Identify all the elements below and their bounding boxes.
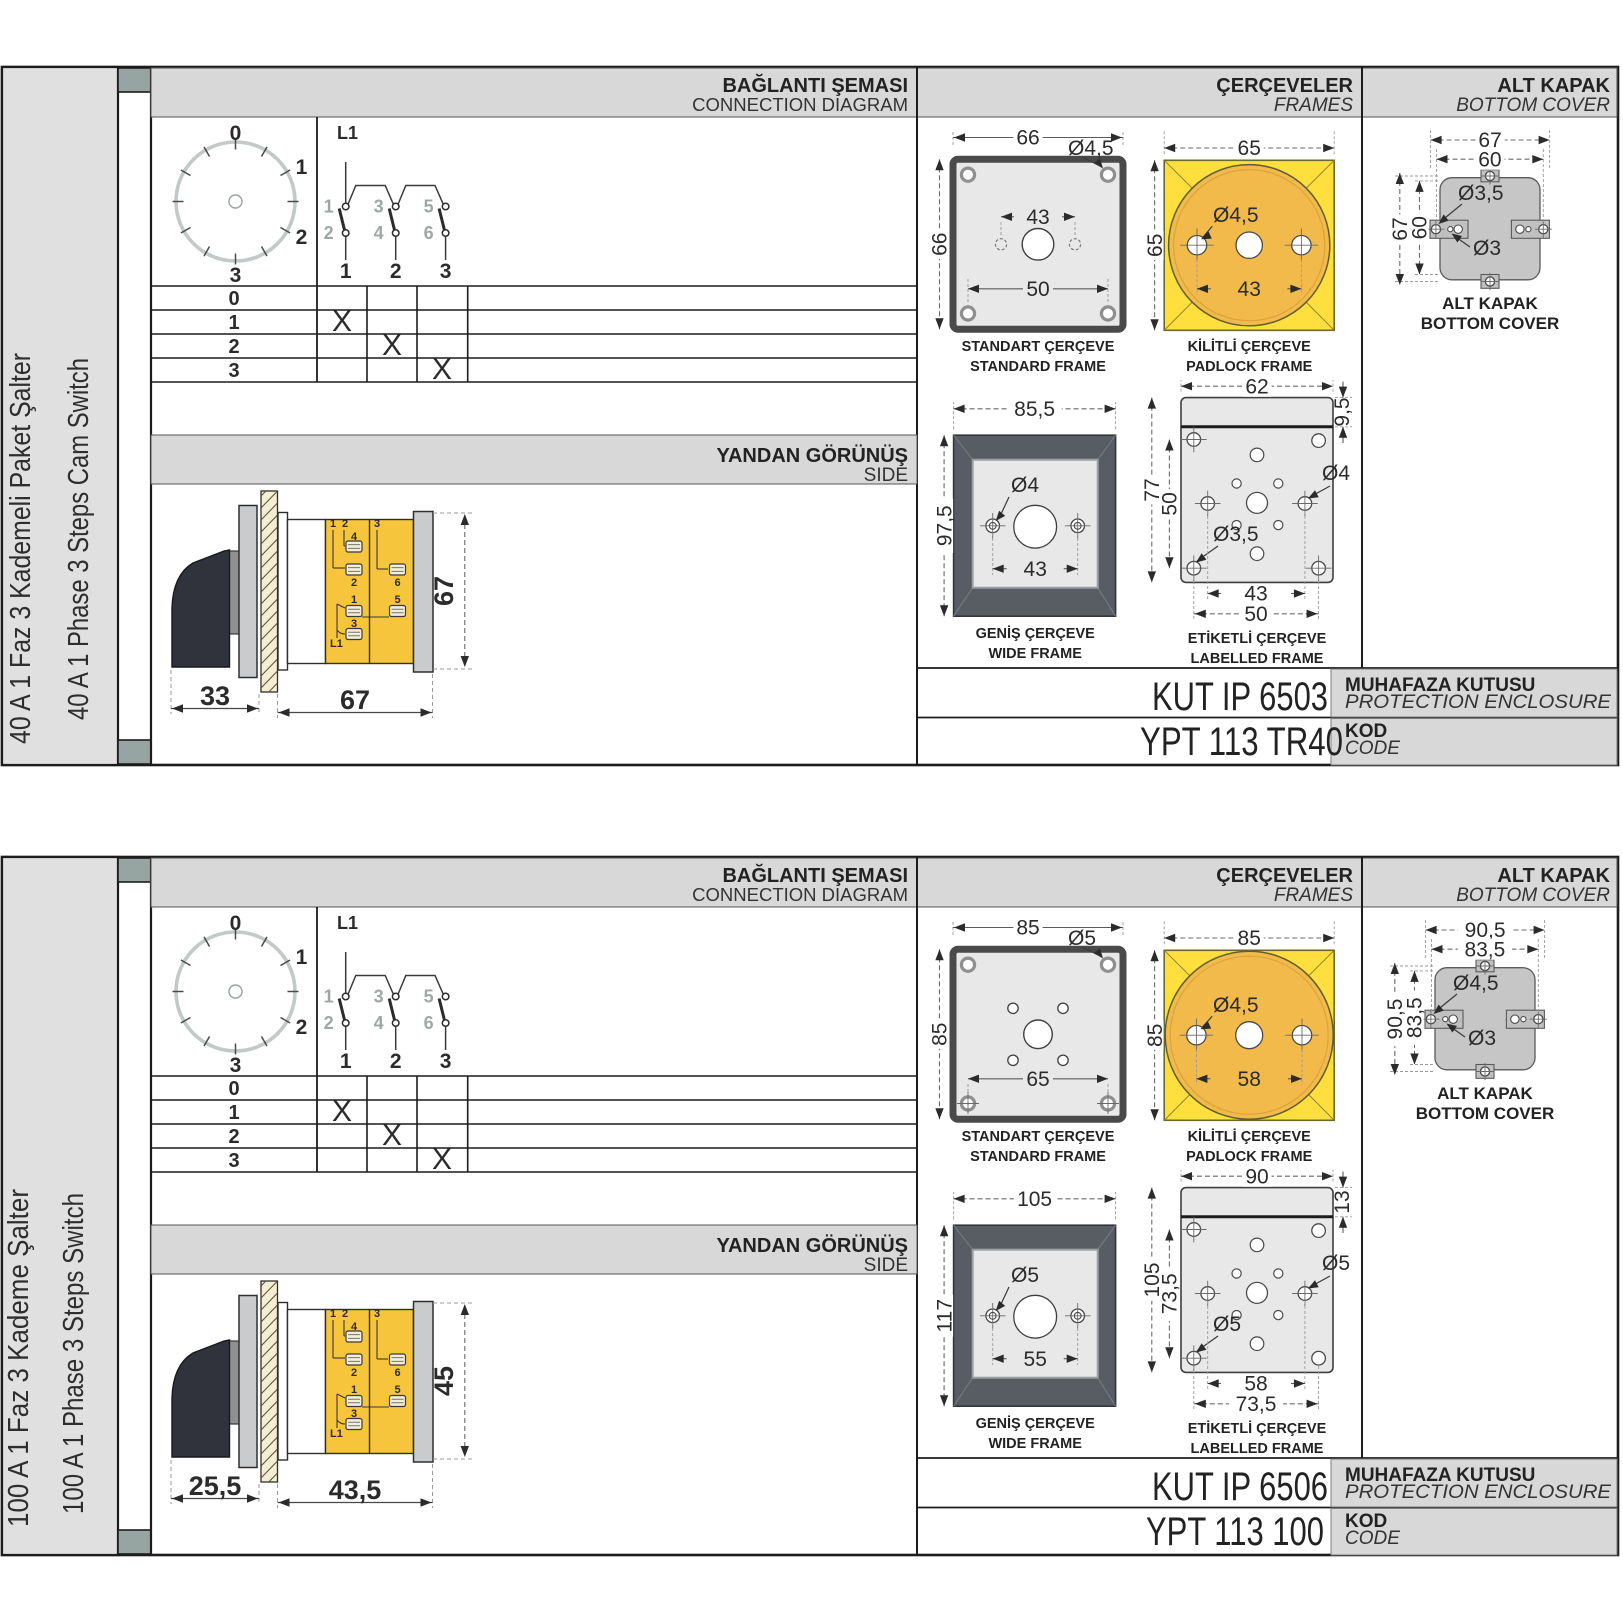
svg-text:X: X [332, 1095, 352, 1128]
svg-text:2: 2 [296, 226, 308, 249]
svg-text:4: 4 [374, 223, 384, 243]
svg-text:1: 1 [228, 1102, 239, 1124]
svg-text:6: 6 [394, 577, 400, 589]
svg-text:55: 55 [1024, 1348, 1047, 1371]
svg-text:40 A 1 Phase 3 Steps Cam Switc: 40 A 1 Phase 3 Steps Cam Switch [63, 358, 95, 720]
svg-text:100 A 1 Phase 3 Steps Switch: 100 A 1 Phase 3 Steps Switch [58, 1193, 90, 1514]
svg-text:1: 1 [351, 594, 357, 606]
svg-text:6: 6 [424, 1013, 434, 1033]
svg-text:L1: L1 [337, 913, 358, 933]
svg-text:50: 50 [1159, 492, 1182, 515]
svg-text:ETİKETLİ ÇERÇEVE: ETİKETLİ ÇERÇEVE [1188, 630, 1327, 647]
svg-text:43: 43 [1026, 206, 1049, 229]
svg-text:67: 67 [429, 576, 459, 606]
svg-text:FRAMES: FRAMES [1274, 95, 1354, 116]
svg-text:SIDE: SIDE [864, 465, 908, 486]
svg-text:Ø5: Ø5 [1068, 927, 1096, 950]
svg-text:5: 5 [394, 594, 400, 606]
svg-text:2: 2 [390, 1050, 402, 1073]
svg-text:SIDE: SIDE [864, 1255, 908, 1276]
svg-text:2: 2 [324, 1013, 334, 1033]
svg-text:X: X [382, 329, 402, 362]
svg-text:0: 0 [228, 1078, 239, 1100]
svg-text:83,5: 83,5 [1404, 997, 1427, 1038]
svg-text:117: 117 [933, 1299, 956, 1332]
svg-text:43: 43 [1238, 278, 1261, 301]
svg-text:L1: L1 [330, 638, 343, 650]
svg-text:Ø3: Ø3 [1468, 1027, 1496, 1050]
svg-text:2: 2 [324, 223, 334, 243]
svg-text:73,5: 73,5 [1159, 1273, 1182, 1314]
svg-text:3: 3 [228, 1150, 239, 1172]
svg-text:ETİKETLİ ÇERÇEVE: ETİKETLİ ÇERÇEVE [1188, 1420, 1327, 1437]
svg-text:Ø5: Ø5 [1011, 1264, 1039, 1287]
svg-text:90: 90 [1245, 1165, 1268, 1188]
svg-text:1: 1 [296, 946, 308, 969]
svg-text:PADLOCK FRAME: PADLOCK FRAME [1186, 1149, 1313, 1165]
svg-text:Ø4: Ø4 [1011, 474, 1039, 497]
svg-text:105: 105 [1017, 1188, 1052, 1211]
svg-text:3: 3 [230, 264, 242, 287]
svg-text:100 A 1 Faz 3 Kademe Şalter: 100 A 1 Faz 3 Kademe Şalter [3, 1189, 35, 1527]
svg-text:KUT IP 6503: KUT IP 6503 [1152, 675, 1328, 719]
svg-text:YPT 113 100: YPT 113 100 [1146, 1510, 1324, 1554]
svg-text:6: 6 [424, 223, 434, 243]
svg-text:40 A 1 Faz 3 Kademeli Paket Şa: 40 A 1 Faz 3 Kademeli Paket Şalter [5, 353, 37, 744]
svg-text:65: 65 [1026, 1068, 1049, 1091]
svg-text:CONNECTION DIAGRAM: CONNECTION DIAGRAM [692, 94, 908, 115]
svg-text:43,5: 43,5 [329, 1475, 382, 1505]
svg-text:Ø5: Ø5 [1213, 1313, 1241, 1336]
svg-text:YANDAN GÖRÜNÜŞ: YANDAN GÖRÜNÜŞ [716, 444, 908, 467]
svg-text:BOTTOM COVER: BOTTOM COVER [1421, 314, 1560, 333]
svg-text:KUT IP 6506: KUT IP 6506 [1152, 1465, 1328, 1509]
svg-text:4: 4 [374, 1013, 384, 1033]
svg-text:BOTTOM COVER: BOTTOM COVER [1416, 1104, 1555, 1123]
svg-text:66: 66 [929, 233, 952, 256]
svg-text:0: 0 [228, 288, 239, 310]
svg-text:85: 85 [929, 1023, 952, 1046]
svg-text:2: 2 [390, 260, 402, 283]
svg-text:85: 85 [1016, 917, 1039, 940]
svg-text:PROTECTION ENCLOSURE: PROTECTION ENCLOSURE [1345, 1482, 1611, 1503]
svg-text:YPT 113 TR40: YPT 113 TR40 [1140, 720, 1343, 764]
svg-text:CODE: CODE [1345, 1528, 1400, 1549]
svg-text:LABELLED FRAME: LABELLED FRAME [1191, 651, 1324, 667]
svg-text:GENİŞ ÇERÇEVE: GENİŞ ÇERÇEVE [976, 1415, 1096, 1432]
svg-text:Ø4,5: Ø4,5 [1453, 972, 1499, 995]
svg-text:STANDART ÇERÇEVE: STANDART ÇERÇEVE [962, 1129, 1115, 1145]
svg-text:3: 3 [228, 360, 239, 382]
svg-text:ALT KAPAK: ALT KAPAK [1437, 1084, 1533, 1103]
svg-text:4: 4 [351, 1321, 358, 1333]
svg-text:2: 2 [296, 1016, 308, 1039]
svg-text:2: 2 [228, 1126, 239, 1148]
svg-text:5: 5 [394, 1384, 400, 1396]
svg-text:BOTTOM COVER: BOTTOM COVER [1456, 885, 1610, 906]
svg-text:1: 1 [351, 1384, 357, 1396]
svg-text:9,5: 9,5 [1331, 397, 1354, 426]
svg-text:85: 85 [1238, 927, 1261, 950]
svg-text:58: 58 [1238, 1068, 1261, 1091]
svg-text:50: 50 [1026, 278, 1049, 301]
svg-text:6: 6 [394, 1367, 400, 1379]
svg-text:1: 1 [330, 518, 336, 530]
svg-text:67: 67 [340, 685, 370, 715]
svg-text:4: 4 [351, 531, 358, 543]
svg-text:60: 60 [1478, 148, 1501, 171]
svg-text:66: 66 [1016, 127, 1039, 150]
svg-text:5: 5 [424, 197, 434, 217]
svg-text:3: 3 [374, 518, 380, 530]
svg-text:ALT KAPAK: ALT KAPAK [1442, 294, 1538, 313]
svg-text:65: 65 [1238, 137, 1261, 160]
svg-text:33: 33 [200, 681, 230, 711]
svg-text:STANDART ÇERÇEVE: STANDART ÇERÇEVE [962, 339, 1115, 355]
svg-text:Ø4,5: Ø4,5 [1213, 994, 1259, 1017]
svg-text:50: 50 [1244, 603, 1267, 626]
svg-text:60: 60 [1409, 216, 1432, 239]
svg-text:2: 2 [228, 336, 239, 358]
svg-text:1: 1 [340, 1050, 352, 1073]
svg-text:97,5: 97,5 [933, 505, 956, 546]
svg-text:5: 5 [424, 987, 434, 1007]
svg-text:1: 1 [330, 1308, 336, 1320]
svg-text:1: 1 [324, 987, 334, 1007]
svg-text:0: 0 [230, 122, 242, 145]
svg-text:3: 3 [374, 987, 384, 1007]
svg-text:3: 3 [440, 260, 452, 283]
svg-text:85: 85 [1144, 1024, 1167, 1047]
svg-text:STANDARD FRAME: STANDARD FRAME [970, 359, 1106, 375]
svg-text:Ø4,5: Ø4,5 [1213, 204, 1259, 227]
svg-text:43: 43 [1024, 558, 1047, 581]
svg-text:WIDE FRAME: WIDE FRAME [988, 646, 1082, 662]
svg-text:2: 2 [351, 577, 357, 589]
svg-text:KİLİTLİ ÇERÇEVE: KİLİTLİ ÇERÇEVE [1188, 338, 1312, 355]
svg-text:FRAMES: FRAMES [1274, 885, 1354, 906]
svg-text:Ø4: Ø4 [1322, 462, 1350, 485]
svg-text:Ø4,5: Ø4,5 [1068, 137, 1114, 160]
svg-text:45: 45 [429, 1366, 459, 1396]
svg-text:3: 3 [230, 1054, 242, 1077]
svg-text:PROTECTION ENCLOSURE: PROTECTION ENCLOSURE [1345, 692, 1611, 713]
svg-text:2: 2 [342, 518, 348, 530]
svg-text:0: 0 [230, 912, 242, 935]
svg-text:1: 1 [324, 197, 334, 217]
svg-text:62: 62 [1245, 375, 1268, 398]
svg-text:LABELLED FRAME: LABELLED FRAME [1191, 1441, 1324, 1457]
svg-text:X: X [332, 305, 352, 338]
svg-text:85,5: 85,5 [1014, 398, 1055, 421]
svg-text:73,5: 73,5 [1236, 1393, 1277, 1416]
svg-text:3: 3 [351, 1408, 357, 1420]
svg-text:3: 3 [374, 1308, 380, 1320]
svg-text:65: 65 [1144, 234, 1167, 257]
svg-text:3: 3 [351, 618, 357, 630]
svg-text:GENİŞ ÇERÇEVE: GENİŞ ÇERÇEVE [976, 625, 1096, 642]
svg-text:Ø5: Ø5 [1322, 1252, 1350, 1275]
svg-text:2: 2 [351, 1367, 357, 1379]
svg-text:Ø3: Ø3 [1473, 237, 1501, 260]
svg-text:Ø3,5: Ø3,5 [1213, 523, 1259, 546]
svg-text:STANDARD FRAME: STANDARD FRAME [970, 1149, 1106, 1165]
svg-text:1: 1 [340, 260, 352, 283]
svg-text:L1: L1 [337, 123, 358, 143]
svg-text:3: 3 [440, 1050, 452, 1073]
svg-text:3: 3 [374, 197, 384, 217]
svg-text:ÇERÇEVELER: ÇERÇEVELER [1216, 865, 1353, 887]
svg-text:CONNECTION DIAGRAM: CONNECTION DIAGRAM [692, 884, 908, 905]
svg-text:1: 1 [296, 156, 308, 179]
svg-text:2: 2 [342, 1308, 348, 1320]
svg-text:25,5: 25,5 [189, 1471, 242, 1501]
svg-text:BOTTOM COVER: BOTTOM COVER [1456, 95, 1610, 116]
svg-text:KİLİTLİ ÇERÇEVE: KİLİTLİ ÇERÇEVE [1188, 1128, 1312, 1145]
svg-text:PADLOCK FRAME: PADLOCK FRAME [1186, 359, 1313, 375]
svg-text:ALT KAPAK: ALT KAPAK [1497, 75, 1610, 97]
svg-text:13: 13 [1331, 1190, 1354, 1213]
svg-text:1: 1 [228, 312, 239, 334]
svg-text:ALT KAPAK: ALT KAPAK [1497, 865, 1610, 887]
svg-text:L1: L1 [330, 1428, 343, 1440]
svg-text:YANDAN GÖRÜNÜŞ: YANDAN GÖRÜNÜŞ [716, 1234, 908, 1257]
svg-text:X: X [432, 1143, 452, 1176]
svg-text:WIDE FRAME: WIDE FRAME [988, 1436, 1082, 1452]
svg-text:83,5: 83,5 [1464, 938, 1505, 961]
svg-text:X: X [382, 1119, 402, 1152]
svg-text:CODE: CODE [1345, 738, 1400, 759]
svg-text:ÇERÇEVELER: ÇERÇEVELER [1216, 75, 1353, 97]
svg-text:X: X [432, 353, 452, 386]
svg-text:Ø3,5: Ø3,5 [1458, 182, 1504, 205]
